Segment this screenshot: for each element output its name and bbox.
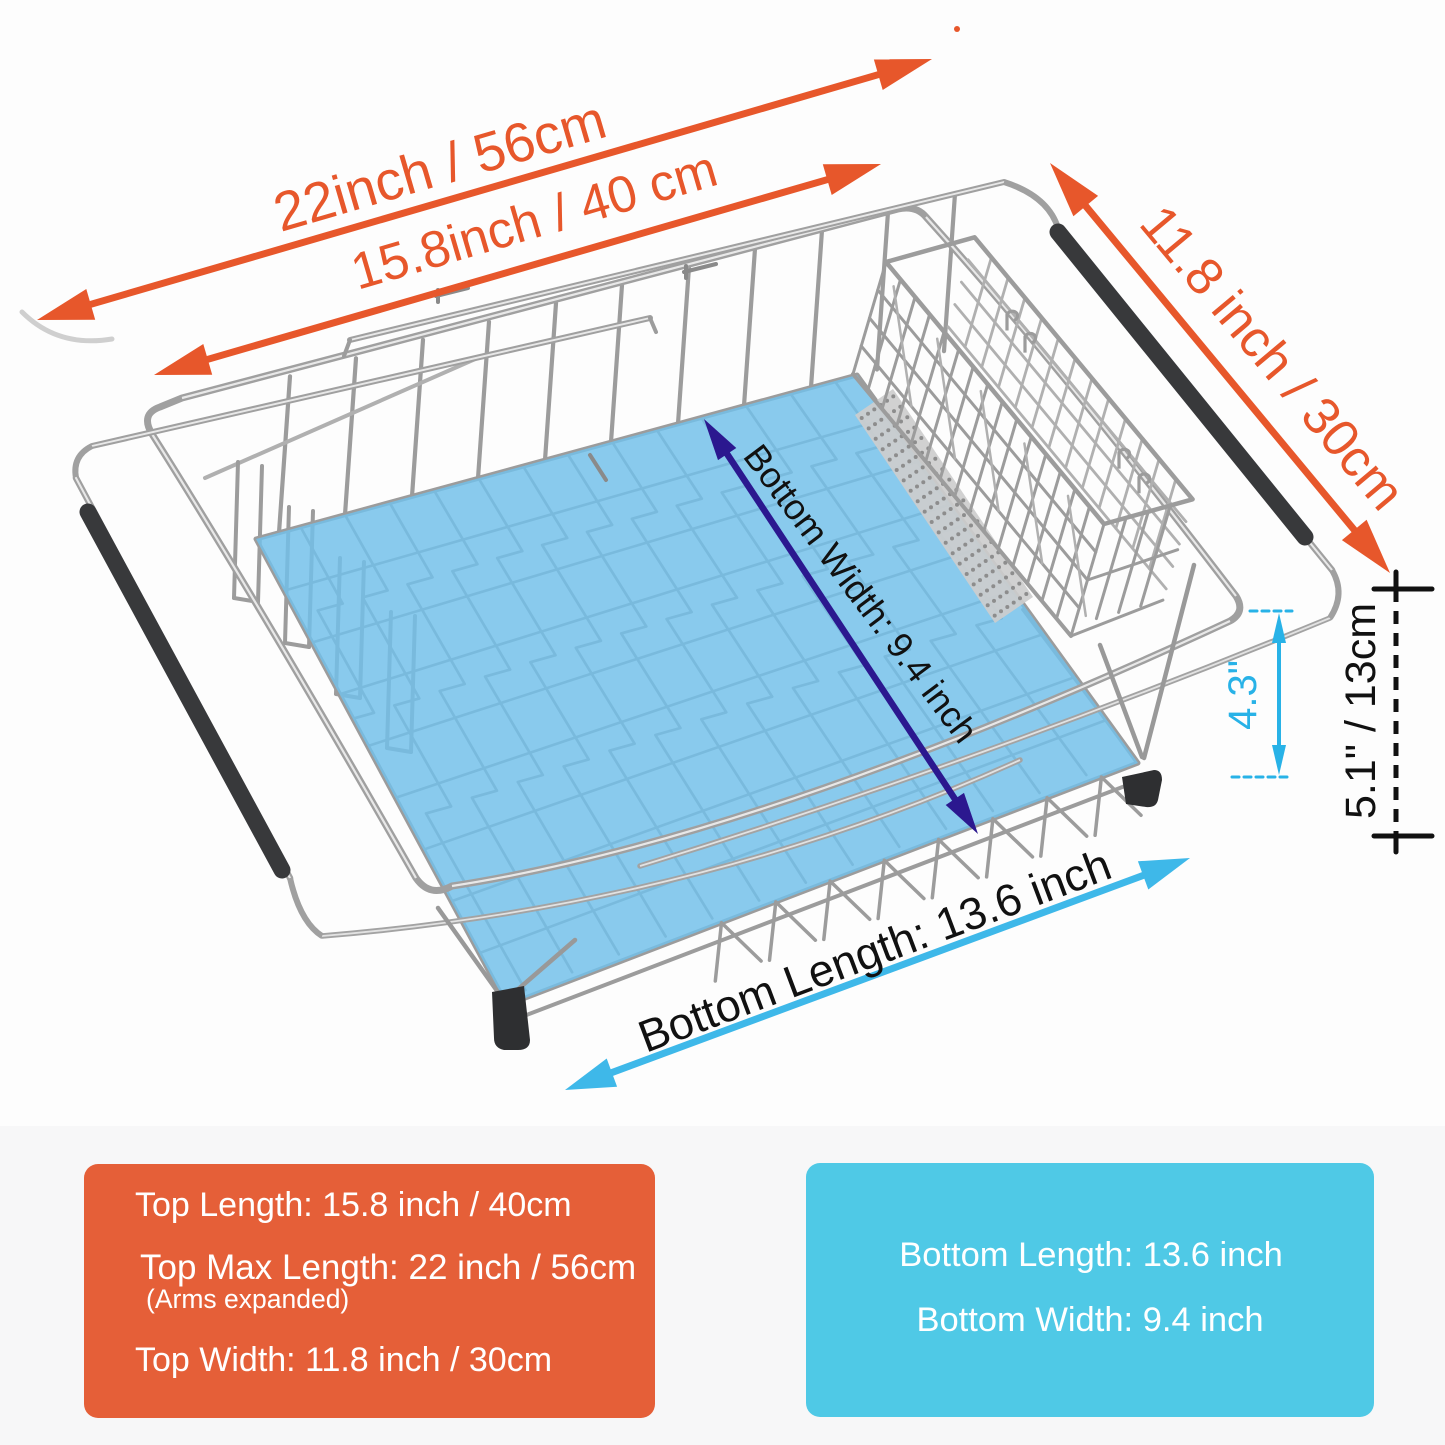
svg-text:Bottom Length: 13.6 inch: Bottom Length: 13.6 inch [899,1236,1283,1274]
svg-text:Top Max Length: 22 inch / 56c: Top Max Length: 22 inch / 56cm [140,1248,636,1287]
svg-text:4.3": 4.3" [1221,660,1265,730]
svg-text:Top Width: 11.8 inch / 30cm: Top Width: 11.8 inch / 30cm [135,1341,552,1379]
svg-text:5.1" / 13cm: 5.1" / 13cm [1337,603,1385,819]
svg-text:Bottom Width: 9.4 inch: Bottom Width: 9.4 inch [916,1301,1263,1339]
svg-text:(Arms expanded): (Arms expanded) [146,1284,349,1314]
svg-text:Top Length: 15.8 inch / 40cm: Top Length: 15.8 inch / 40cm [135,1186,572,1224]
